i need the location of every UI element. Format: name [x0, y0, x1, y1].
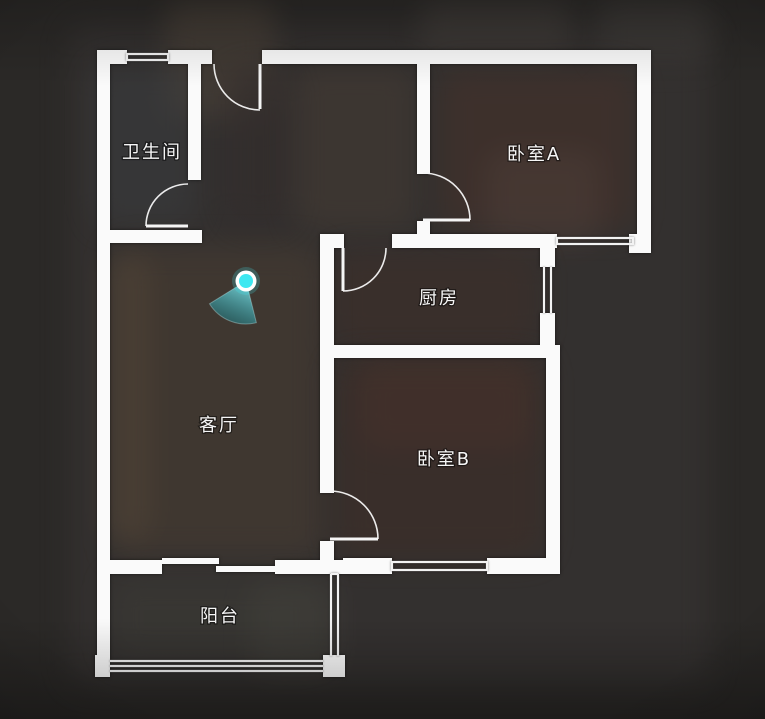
wall-segment [637, 50, 651, 253]
wall-segment [216, 566, 275, 572]
wall-segment [97, 50, 110, 675]
wall-segment [343, 558, 392, 574]
wall-segment [487, 558, 560, 574]
wall-segment [162, 558, 219, 564]
wall-segment [188, 50, 201, 180]
room-labels-layer: 卫生间卧室A厨房客厅卧室B阳台 [122, 142, 561, 627]
wall-segment [320, 345, 557, 358]
floorplan-viewer[interactable]: 卫生间卧室A厨房客厅卧室B阳台 [0, 0, 765, 719]
window-bedroom-a-south [557, 237, 633, 245]
wall-segment [546, 345, 560, 574]
room-label-bedroom-b[interactable]: 卧室B [417, 449, 471, 470]
door-swing-arc [343, 248, 386, 291]
wall-segment [97, 560, 162, 574]
door-entry [214, 64, 260, 110]
wall-segment [323, 655, 345, 677]
window-kitchen-east [544, 267, 551, 313]
room-label-bedroom-a[interactable]: 卧室A [507, 144, 561, 165]
camera-dot-icon [239, 274, 253, 288]
wall-segment [97, 230, 202, 243]
room-label-balcony[interactable]: 阳台 [200, 606, 240, 627]
window-bathroom-top [127, 53, 168, 61]
wall-segment [392, 234, 557, 248]
camera-position-marker[interactable] [210, 267, 261, 324]
door-bedroom-a [423, 173, 470, 220]
window-balcony-east [331, 574, 338, 656]
wall-segment [95, 655, 110, 677]
door-bathroom [146, 184, 188, 226]
floorplan-svg[interactable]: 卫生间卧室A厨房客厅卧室B阳台 [0, 0, 765, 719]
door-swing-arc [214, 64, 260, 110]
wall-segment [320, 234, 334, 493]
wall-segment [417, 221, 430, 235]
door-bedroom-b [330, 491, 378, 539]
door-kitchen [343, 248, 386, 291]
wall-segment [262, 50, 651, 64]
door-swing-arc [330, 491, 378, 539]
wall-segment [540, 234, 555, 267]
window-bedroom-b-south [392, 561, 487, 571]
wall-segment [417, 50, 430, 174]
wall-segment [320, 541, 334, 560]
room-label-living-room[interactable]: 客厅 [199, 415, 239, 436]
wall-segment [275, 560, 343, 574]
room-label-bathroom[interactable]: 卫生间 [122, 142, 182, 163]
room-label-kitchen[interactable]: 厨房 [419, 288, 459, 309]
window-balcony-south [110, 661, 323, 671]
door-swing-arc [423, 173, 470, 220]
door-swing-arc [146, 184, 188, 226]
